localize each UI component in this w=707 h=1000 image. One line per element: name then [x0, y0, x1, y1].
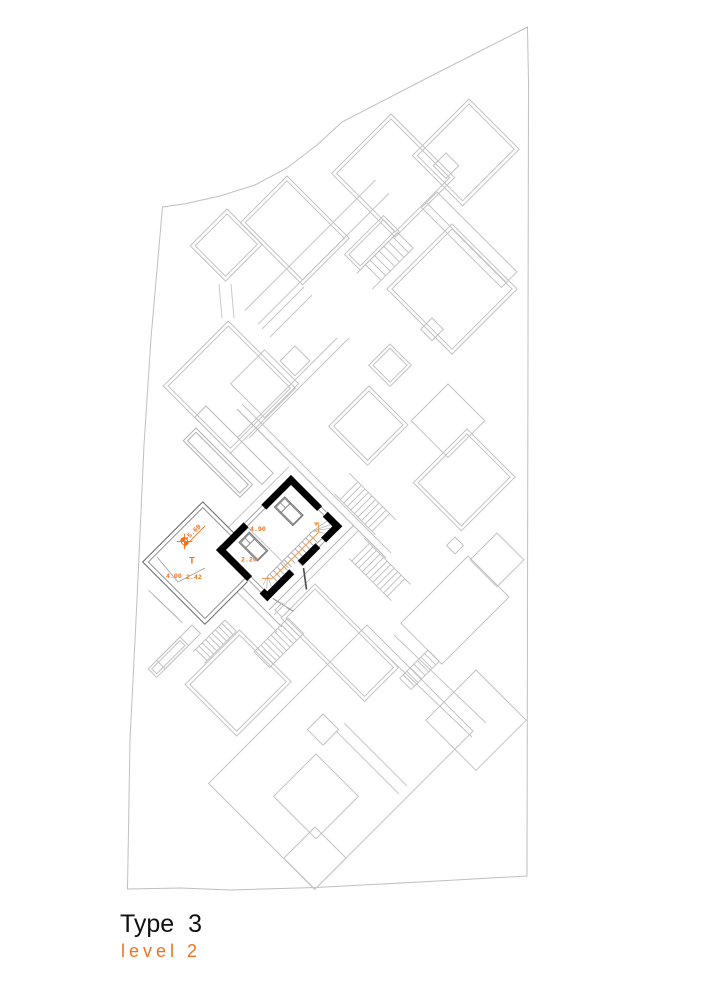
svg-text:2.20: 2.20 [241, 557, 257, 564]
svg-text:4.90: 4.90 [250, 526, 266, 533]
svg-text:2.42: 2.42 [186, 574, 202, 581]
svg-text:4.00: 4.00 [166, 573, 182, 580]
svg-text:T: T [189, 556, 195, 567]
